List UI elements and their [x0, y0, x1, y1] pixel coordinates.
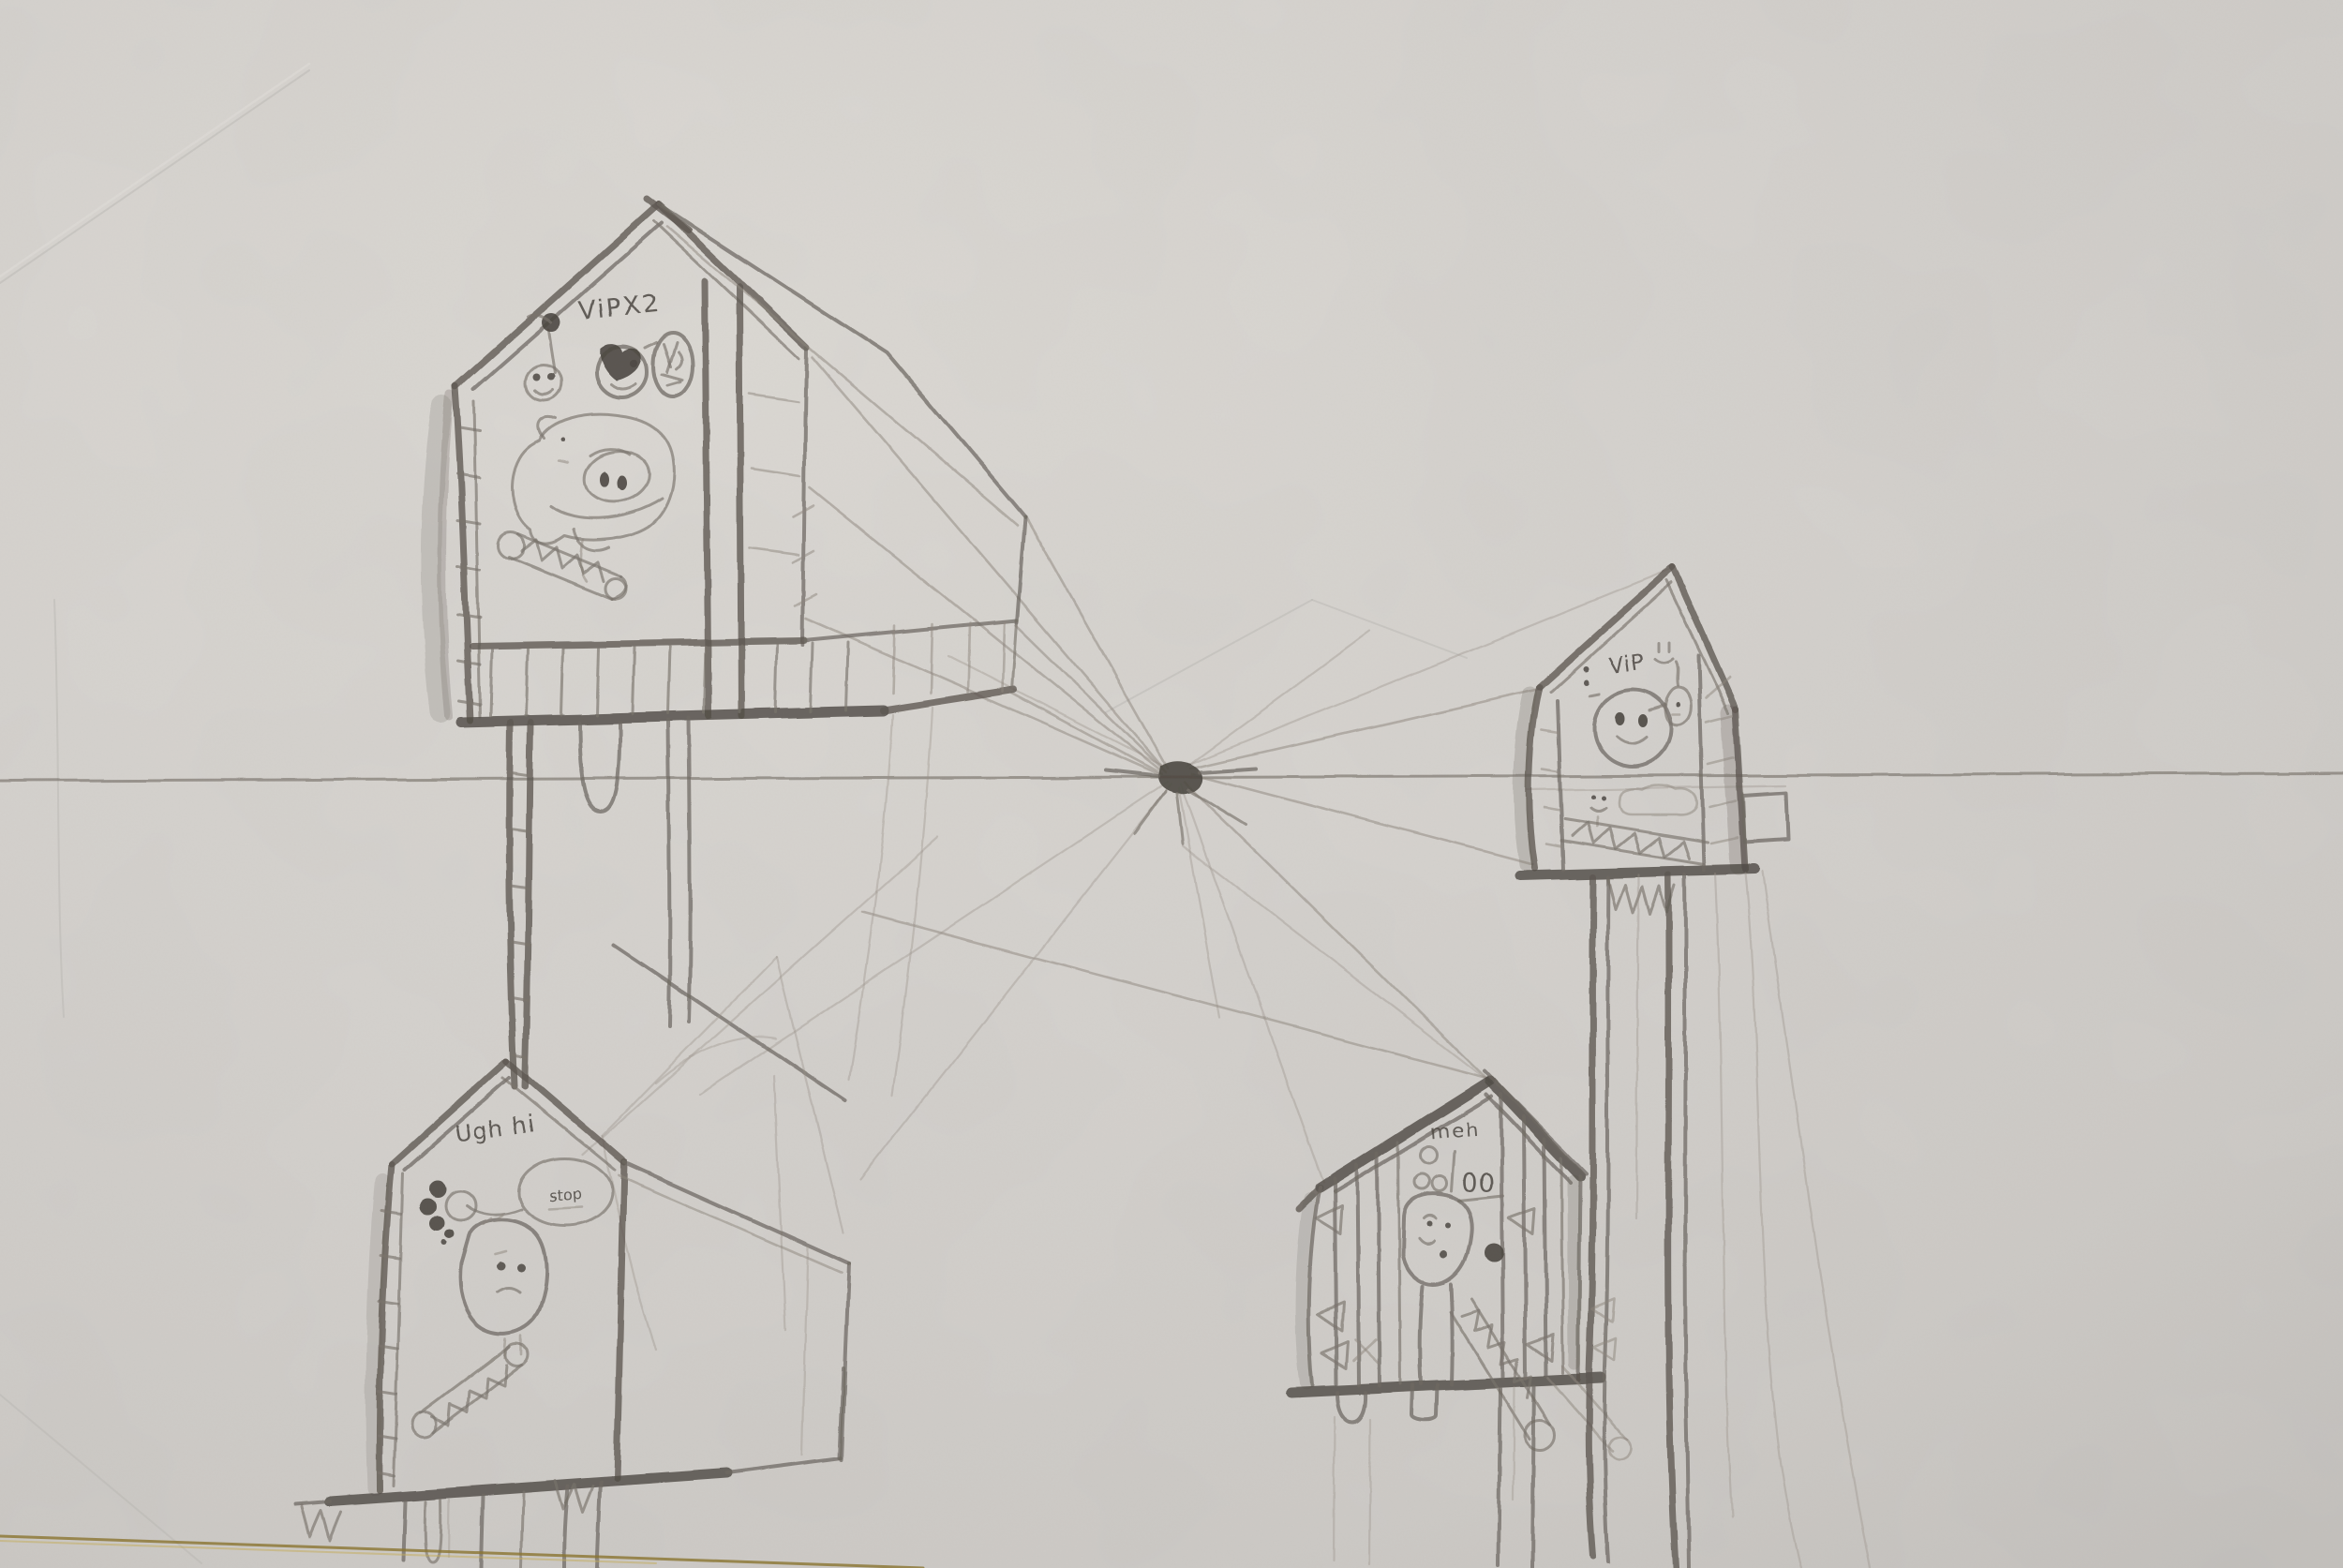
pencil-drawing: ViPX2 [0, 0, 2343, 1568]
paper-grain [0, 0, 2343, 1568]
photo-of-pencil-sketch: ViPX2 [0, 0, 2343, 1568]
